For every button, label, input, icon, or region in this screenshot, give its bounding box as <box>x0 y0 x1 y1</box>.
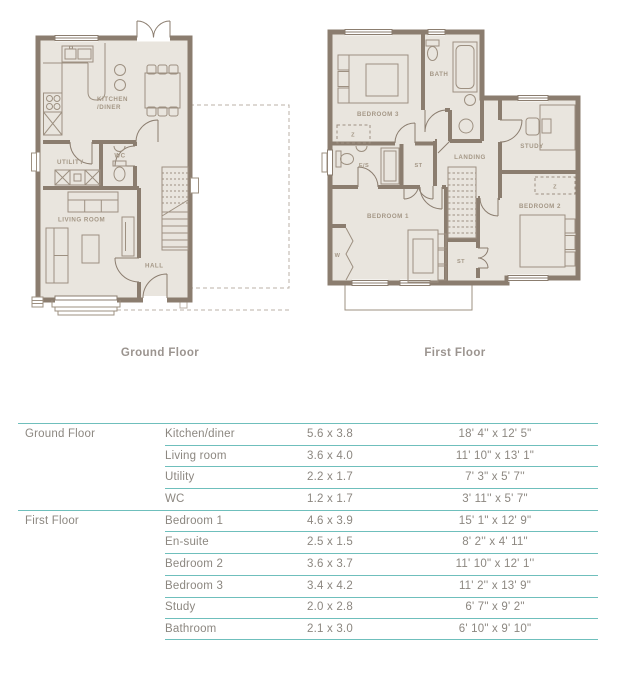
cell-imperial: 18' 4'' x 12' 5" <box>430 428 560 440</box>
store2-label: ST <box>457 259 465 265</box>
first-floor-plan: BEDROOM 3 BATH STUDY LANDING E/S ST ST B… <box>320 0 610 335</box>
table-row: Utility 2.2 x 1.7 7' 3" x 5' 7'' <box>18 466 598 488</box>
cell-room: En-suite <box>165 536 307 548</box>
cell-metric: 2.2 x 1.7 <box>307 471 430 483</box>
ground-floor-plan: KITCHEN /DINER UTILITY WC LIVING ROOM HA… <box>30 0 300 335</box>
table-row: First Floor Bedroom 1 4.6 x 3.9 15' 1" x… <box>18 510 598 532</box>
utility-label: UTILITY <box>57 159 84 166</box>
table-row: Living room 3.6 x 4.0 11' 10" x 13' 1" <box>18 445 598 467</box>
cell-metric: 2.5 x 1.5 <box>307 536 430 548</box>
ensuite-label: E/S <box>359 163 369 169</box>
table-row: Study 2.0 x 2.8 6' 7" x 9' 2" <box>18 597 598 619</box>
cell-imperial: 3' 11'' x 5' 7" <box>430 493 560 505</box>
cell-room: Utility <box>165 471 307 483</box>
landing-label: LANDING <box>454 154 486 161</box>
bath-label: BATH <box>430 71 449 78</box>
bedroom3-label: BEDROOM 3 <box>357 111 399 118</box>
cell-imperial: 15' 1" x 12' 9" <box>430 515 560 527</box>
cell-room: Bedroom 1 <box>165 515 307 527</box>
cell-metric: 1.2 x 1.7 <box>307 493 430 505</box>
floorplan-page: KITCHEN /DINER UTILITY WC LIVING ROOM HA… <box>0 0 624 674</box>
cell-room: Bedroom 3 <box>165 580 307 592</box>
first-floor-drawing: BEDROOM 3 BATH STUDY LANDING E/S ST ST B… <box>320 0 610 335</box>
zone2-label: Z <box>553 185 557 191</box>
cell-room: Bathroom <box>165 623 307 635</box>
cell-imperial: 6' 10" x 9' 10" <box>430 623 560 635</box>
outer-walls <box>38 38 190 300</box>
cell-room: WC <box>165 493 307 505</box>
dimensions-table: Ground Floor Kitchen/diner 5.6 x 3.8 18'… <box>18 423 598 640</box>
cell-room: Bedroom 2 <box>165 558 307 570</box>
table-row: WC 1.2 x 1.7 3' 11'' x 5' 7" <box>18 488 598 510</box>
cell-floor: Ground Floor <box>18 428 165 440</box>
ground-floor-drawing: KITCHEN /DINER UTILITY WC LIVING ROOM HA… <box>30 0 300 335</box>
cell-imperial: 6' 7" x 9' 2" <box>430 601 560 613</box>
wc-label: WC <box>114 153 125 160</box>
study-label: STUDY <box>520 143 544 150</box>
porch-outline <box>345 283 472 310</box>
table-row: Ground Floor Kitchen/diner 5.6 x 3.8 18'… <box>18 423 598 445</box>
cell-room: Living room <box>165 450 307 462</box>
bedroom1-label: BEDROOM 1 <box>367 213 409 220</box>
zone1-label: Z <box>351 133 355 139</box>
cell-metric: 2.1 x 3.0 <box>307 623 430 635</box>
cell-metric: 3.6 x 4.0 <box>307 450 430 462</box>
table-row: Bathroom 2.1 x 3.0 6' 10" x 9' 10" <box>18 618 598 640</box>
cell-imperial: 11' 2'' x 13' 9" <box>430 580 560 592</box>
cell-floor: First Floor <box>18 515 165 527</box>
cell-imperial: 8' 2'' x 4' 11" <box>430 536 560 548</box>
cell-room: Study <box>165 601 307 613</box>
cell-metric: 2.0 x 2.8 <box>307 601 430 613</box>
cell-room: Kitchen/diner <box>165 428 307 440</box>
cell-imperial: 11' 10" x 13' 1" <box>430 450 560 462</box>
wardrobe-label: W <box>335 253 341 259</box>
cell-imperial: 7' 3" x 5' 7'' <box>430 471 560 483</box>
table-row: Bedroom 2 3.6 x 3.7 11' 10" x 12' 1'' <box>18 553 598 575</box>
cell-metric: 3.4 x 4.2 <box>307 580 430 592</box>
kitchen-diner-label: KITCHEN <box>97 96 128 103</box>
cell-metric: 5.6 x 3.8 <box>307 428 430 440</box>
hall-label: HALL <box>145 263 164 270</box>
cell-metric: 3.6 x 3.7 <box>307 558 430 570</box>
bedroom2-label: BEDROOM 2 <box>519 203 561 210</box>
ground-floor-caption: Ground Floor <box>60 347 260 359</box>
living-room-label: LIVING ROOM <box>58 217 105 224</box>
table-row: En-suite 2.5 x 1.5 8' 2'' x 4' 11" <box>18 531 598 553</box>
store1-label: ST <box>415 163 423 169</box>
cell-metric: 4.6 x 3.9 <box>307 515 430 527</box>
first-floor-caption: First Floor <box>355 347 555 359</box>
cell-imperial: 11' 10" x 12' 1'' <box>430 558 560 570</box>
table-row: Bedroom 3 3.4 x 4.2 11' 2'' x 13' 9" <box>18 575 598 597</box>
kitchen-diner-label2: /DINER <box>97 104 121 111</box>
